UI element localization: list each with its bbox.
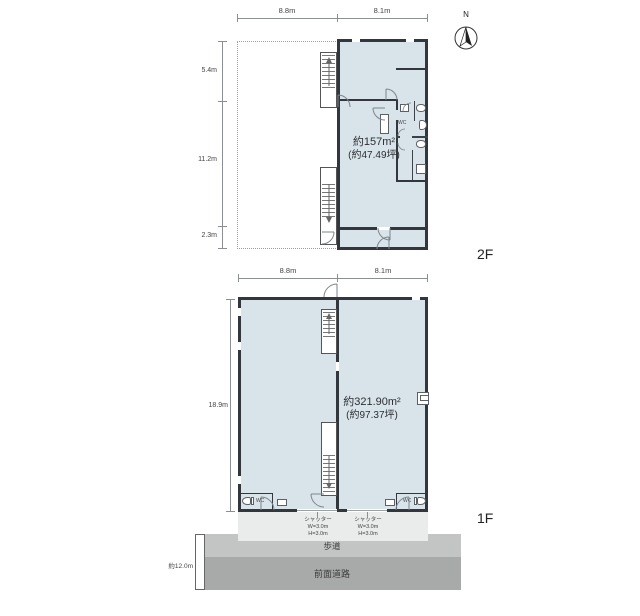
f2-wc-room-door-arc xyxy=(403,103,411,111)
f2-wc-comp2-door-arc xyxy=(398,143,405,150)
f2-upper-stair-arrowhead xyxy=(326,57,332,63)
annotations-layer xyxy=(0,0,640,616)
f1-upper-stair-arrowhead xyxy=(326,313,332,319)
f2-bottom-exit-door-arc xyxy=(377,237,389,249)
f2-wc-comp1-door-arc xyxy=(398,129,405,136)
f2-upper-stair-door-arc xyxy=(338,95,350,107)
f1-top-entry-door-arc xyxy=(324,284,337,297)
f1-wc-left-door-arc xyxy=(261,497,274,510)
f2-hall-door-arc xyxy=(386,89,397,100)
f1-wc-right-door-arc xyxy=(396,497,409,510)
f1-lower-stair-arrowhead xyxy=(326,483,332,489)
f2-lower-stair-door-arc xyxy=(322,232,334,244)
f2-lower-stair-arrowhead xyxy=(326,217,332,223)
f2-wc-entry-door-arc xyxy=(373,108,385,120)
floor-plan-canvas: 8.8m 8.1m 5.4m 11.2m 2.3m N WC 約157m² (約… xyxy=(0,0,640,616)
f1-lower-stair-door-arc xyxy=(311,494,324,507)
